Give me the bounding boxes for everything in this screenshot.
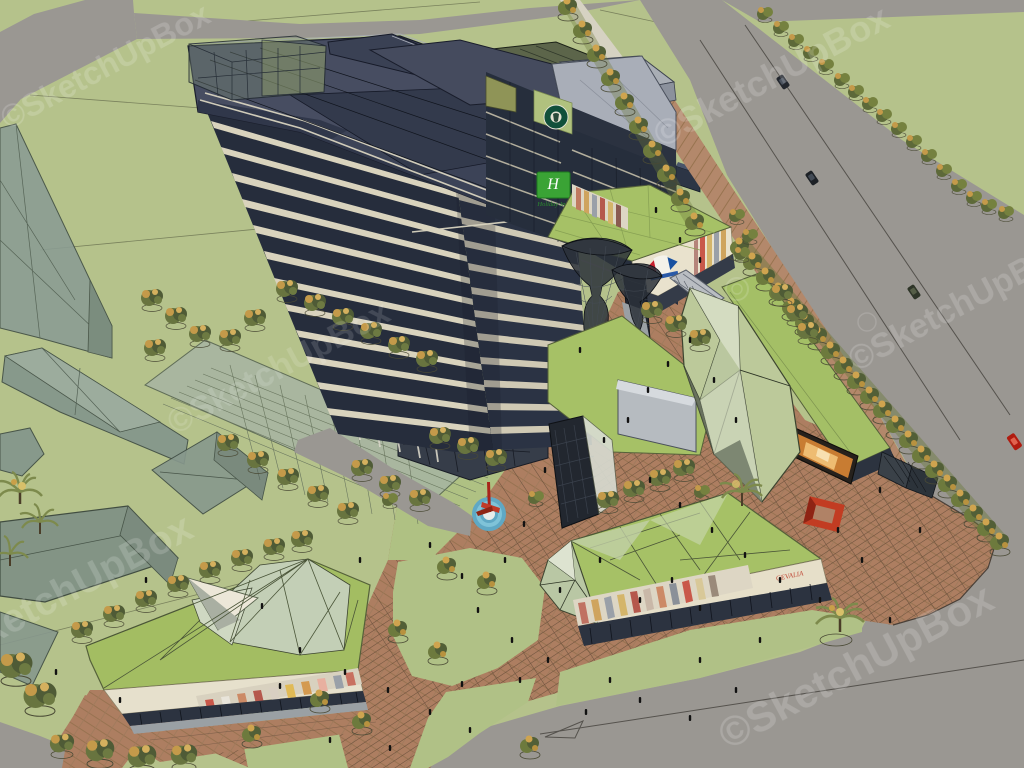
svg-text:Holiday Inn: Holiday Inn (536, 201, 568, 208)
svg-text:H: H (546, 176, 560, 193)
